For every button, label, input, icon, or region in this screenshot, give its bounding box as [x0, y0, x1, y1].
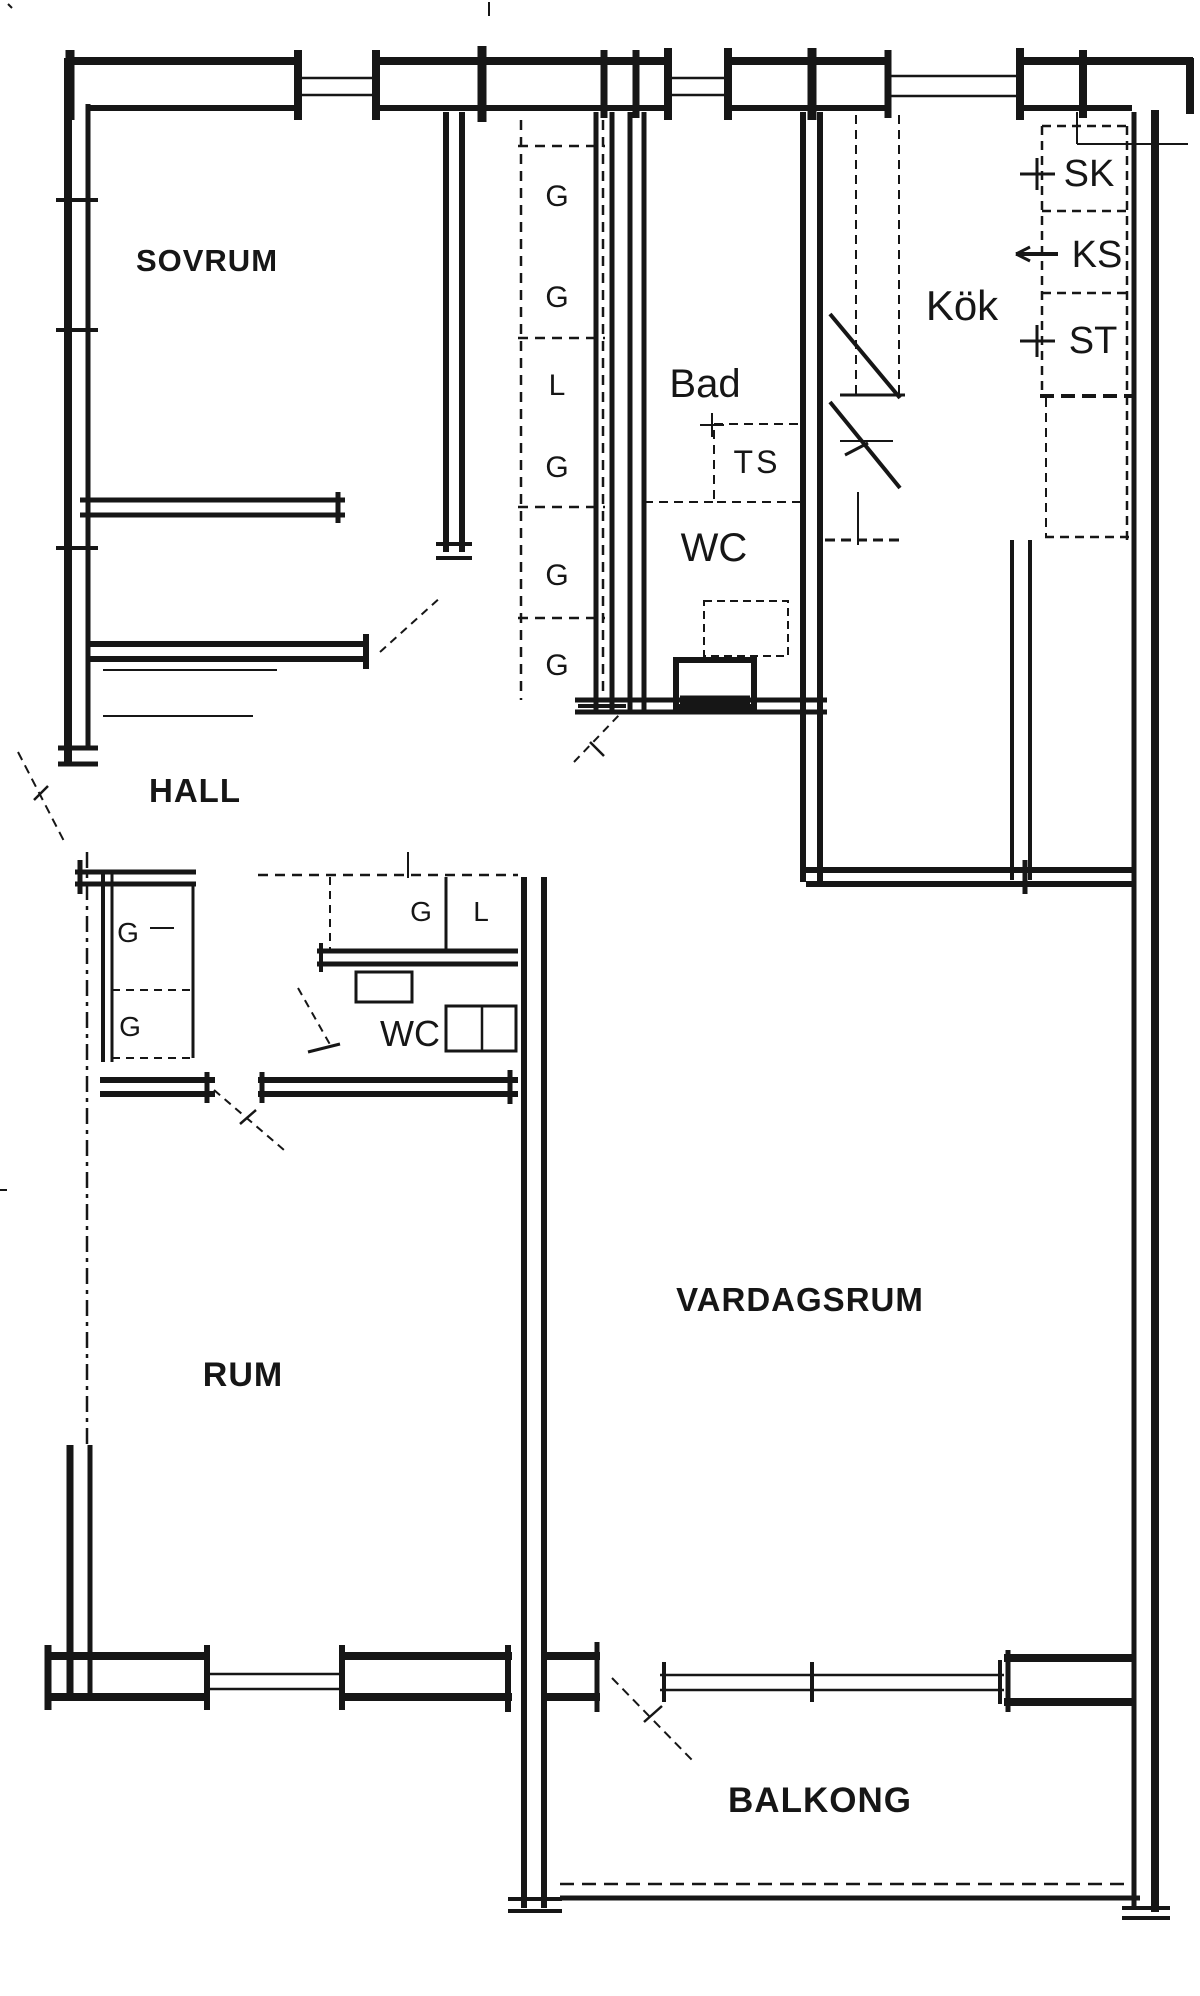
- room-label-wc-upper: WC: [681, 526, 748, 570]
- room-label-sovrum: SOVRUM: [136, 243, 278, 278]
- rum-room: [45, 852, 512, 1840]
- toilet-cistern: [704, 601, 788, 656]
- door-swing-tick: [590, 742, 604, 756]
- closet-column: [518, 112, 626, 712]
- right-wall: [1122, 110, 1170, 1918]
- closet-label-g-3: G: [545, 451, 568, 484]
- balcony: [560, 1884, 1140, 1898]
- floor-plan-drawing: SOVRUM HALL Bad WC Kök RUM VARDAGSRUM BA…: [0, 0, 1200, 1996]
- door-swing: [298, 988, 332, 1048]
- door-swing-tick: [240, 1110, 256, 1124]
- vardagsrum-south: [544, 1642, 1136, 1760]
- floor-plan-page: { "document": { "type": "apartment floor…: [0, 0, 1200, 1996]
- scan-speck: [8, 4, 12, 8]
- cabinet-label-st: ST: [1069, 320, 1118, 362]
- closet-label-g-4: G: [545, 559, 568, 592]
- closet-label-ts: TS: [734, 444, 781, 480]
- door-swing: [214, 1090, 284, 1150]
- closet-label-l-2: L: [473, 896, 489, 927]
- room-label-wc-lower: WC: [380, 1013, 440, 1054]
- closet-label-g-1: G: [545, 180, 568, 213]
- stove-diagonal: [830, 314, 900, 398]
- door-swing: [380, 596, 442, 652]
- sovrum-room: [80, 112, 472, 716]
- toilet-cistern: [356, 972, 412, 1002]
- room-label-vardagsrum: VARDAGSRUM: [676, 1281, 924, 1318]
- closet-label-g-2: G: [545, 281, 568, 314]
- closet-label-g-8: G: [410, 896, 432, 927]
- top-wall: [8, 2, 1193, 144]
- diagonal-arrow: [845, 443, 868, 455]
- lower-wc: [100, 972, 518, 1150]
- door-swing-tick: [308, 1044, 340, 1052]
- cabinet-label-sk: SK: [1064, 153, 1115, 195]
- left-wall-upper: [0, 58, 98, 1190]
- room-label-rum: RUM: [203, 1356, 283, 1394]
- room-label-hall: HALL: [149, 772, 241, 809]
- door-swing: [574, 714, 620, 762]
- kitchen: [806, 115, 1135, 894]
- room-label-balkong: BALKONG: [728, 1781, 912, 1820]
- closet-label-l-1: L: [549, 369, 566, 402]
- room-label-kok: Kök: [926, 282, 999, 329]
- closet-label-g-6: G: [117, 917, 139, 948]
- cabinet-label-ks: KS: [1072, 234, 1123, 276]
- closet-label-g-5: G: [545, 649, 568, 682]
- closet-label-g-7: G: [119, 1011, 141, 1042]
- room-label-bad: Bad: [669, 362, 740, 406]
